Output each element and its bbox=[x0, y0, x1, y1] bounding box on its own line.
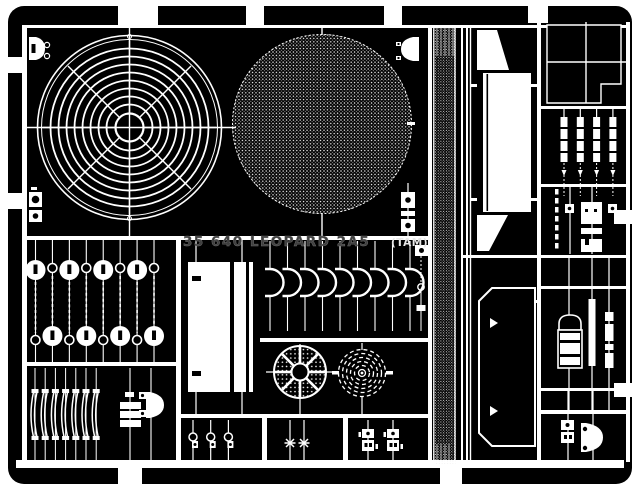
mini-dash bbox=[555, 198, 559, 204]
photo-etch-fret-scan: 35 640 LEOPARD 2A5 (TAM) bbox=[0, 0, 640, 490]
banded-rod-part bbox=[605, 312, 614, 368]
mini-dash bbox=[555, 225, 559, 231]
rod-strip-part bbox=[589, 299, 596, 366]
mini-dash bbox=[555, 243, 559, 249]
mini-dash bbox=[555, 189, 559, 195]
etched-title-suffix: (TAM) bbox=[391, 237, 428, 249]
mini-dash bbox=[555, 234, 559, 240]
mini-dash bbox=[555, 207, 559, 213]
perforated-tread-strip-part bbox=[433, 27, 456, 464]
mini-dash bbox=[555, 216, 559, 222]
eyelet-parts-left bbox=[29, 187, 42, 222]
door-panel-part bbox=[188, 240, 253, 415]
fire-extinguisher-part bbox=[558, 315, 582, 368]
etched-title: 35 640 LEOPARD 2A5 bbox=[183, 234, 370, 250]
